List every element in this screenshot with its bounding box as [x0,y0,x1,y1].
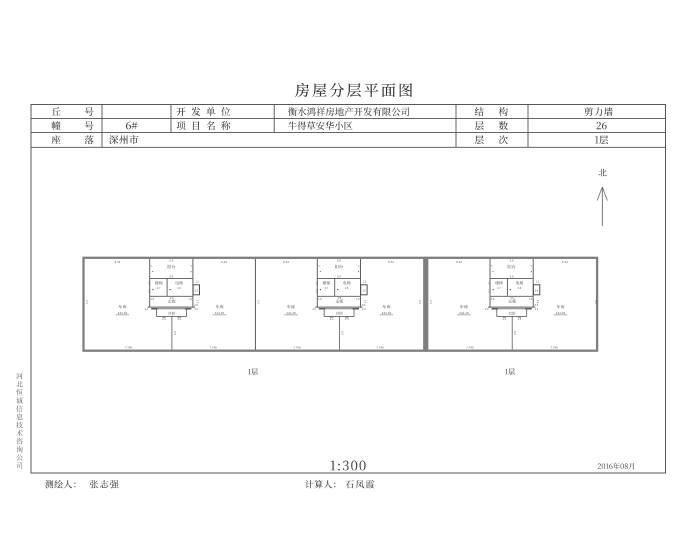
svg-text:1.5: 1.5 [318,298,322,301]
svg-text:2.2: 2.2 [85,300,89,304]
svg-text:141.15: 141.15 [556,311,566,315]
svg-text:141.15: 141.15 [215,311,225,315]
svg-text:3.9: 3.9 [337,296,341,300]
svg-text:2.6: 2.6 [345,286,349,290]
svg-text:2.6: 2.6 [518,286,522,290]
svg-text:1.5: 1.5 [151,298,155,301]
svg-text:7.740: 7.740 [293,346,301,350]
svg-text:6.44: 6.44 [388,260,394,264]
svg-text:2.6: 2.6 [337,258,341,262]
svg-text:1.8: 1.8 [488,281,491,285]
svg-text:2.6: 2.6 [169,258,173,262]
svg-text:3.9: 3.9 [510,296,514,300]
svg-text:7.740: 7.740 [125,346,133,350]
svg-text:141.15: 141.15 [382,311,392,315]
svg-text:1.5: 1.5 [488,289,491,293]
svg-text:2.2: 2.2 [594,300,598,304]
svg-text:2.7: 2.7 [157,286,161,290]
svg-text:1.2: 1.2 [363,280,367,283]
svg-text:1.5: 1.5 [491,298,495,301]
svg-text:1.5: 1.5 [356,298,360,301]
svg-text:3.9: 3.9 [337,274,341,278]
svg-text:1.5: 1.5 [147,289,150,293]
svg-text:3.9: 3.9 [169,274,173,278]
svg-text:6.44: 6.44 [456,260,462,264]
svg-text:2.6: 2.6 [510,258,514,262]
svg-text:6.44: 6.44 [562,260,568,264]
svg-text:7.740: 7.740 [466,346,474,350]
svg-text:2.7: 2.7 [497,286,501,290]
svg-text:3.9: 3.9 [510,274,514,278]
svg-text:1.8: 1.8 [147,281,150,285]
svg-text:6.44: 6.44 [283,260,289,264]
svg-text:7.740: 7.740 [376,346,384,350]
svg-text:2.2: 2.2 [418,300,422,304]
svg-text:1.5: 1.5 [189,298,193,301]
svg-text:3.9: 3.9 [170,296,174,300]
svg-text:6.0: 6.0 [173,331,177,335]
svg-text:7.740: 7.740 [209,346,217,350]
svg-text:1.2: 1.2 [536,280,540,283]
svg-text:2.6: 2.6 [177,286,181,290]
svg-text:1.2: 1.2 [195,280,199,283]
svg-text:6.44: 6.44 [115,260,121,264]
svg-text:6.0: 6.0 [513,331,517,335]
svg-text:7.740: 7.740 [550,346,558,350]
svg-text:6.0: 6.0 [341,331,345,335]
svg-text:1.5: 1.5 [529,298,533,301]
svg-text:1.8: 1.8 [315,281,318,285]
svg-text:1.5: 1.5 [315,289,318,293]
svg-text:6.44: 6.44 [221,260,227,264]
svg-text:141.15: 141.15 [286,311,296,315]
svg-text:141.15: 141.15 [118,311,128,315]
svg-text:2.2: 2.2 [257,300,261,304]
svg-text:2.7: 2.7 [324,286,328,290]
svg-text:141.15: 141.15 [459,311,469,315]
svg-text:2.2: 2.2 [429,300,433,304]
